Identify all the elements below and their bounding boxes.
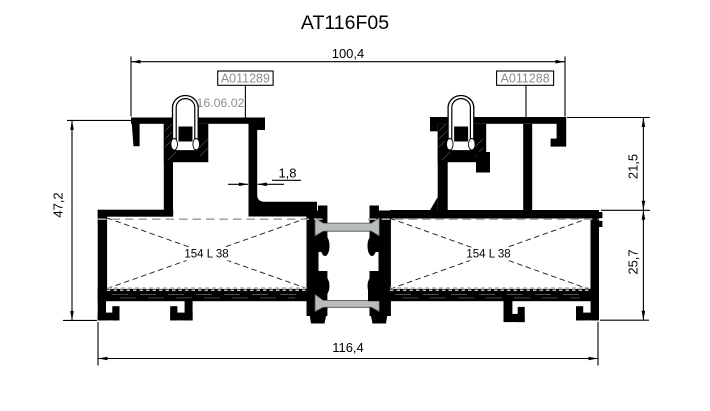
svg-text:116,4: 116,4 bbox=[332, 340, 364, 355]
svg-text:21,5: 21,5 bbox=[626, 154, 641, 179]
svg-text:47,2: 47,2 bbox=[51, 192, 66, 217]
svg-text:154 L 38: 154 L 38 bbox=[466, 249, 510, 261]
svg-text:AT116F05: AT116F05 bbox=[301, 12, 389, 34]
svg-text:154 L 38: 154 L 38 bbox=[184, 249, 228, 261]
svg-text:A011289: A011289 bbox=[221, 71, 270, 85]
svg-text:100,4: 100,4 bbox=[332, 46, 365, 61]
svg-text:16.06.02: 16.06.02 bbox=[197, 96, 245, 110]
svg-text:A011288: A011288 bbox=[501, 71, 550, 85]
svg-text:25,7: 25,7 bbox=[626, 249, 641, 274]
svg-text:1,8: 1,8 bbox=[278, 166, 296, 181]
